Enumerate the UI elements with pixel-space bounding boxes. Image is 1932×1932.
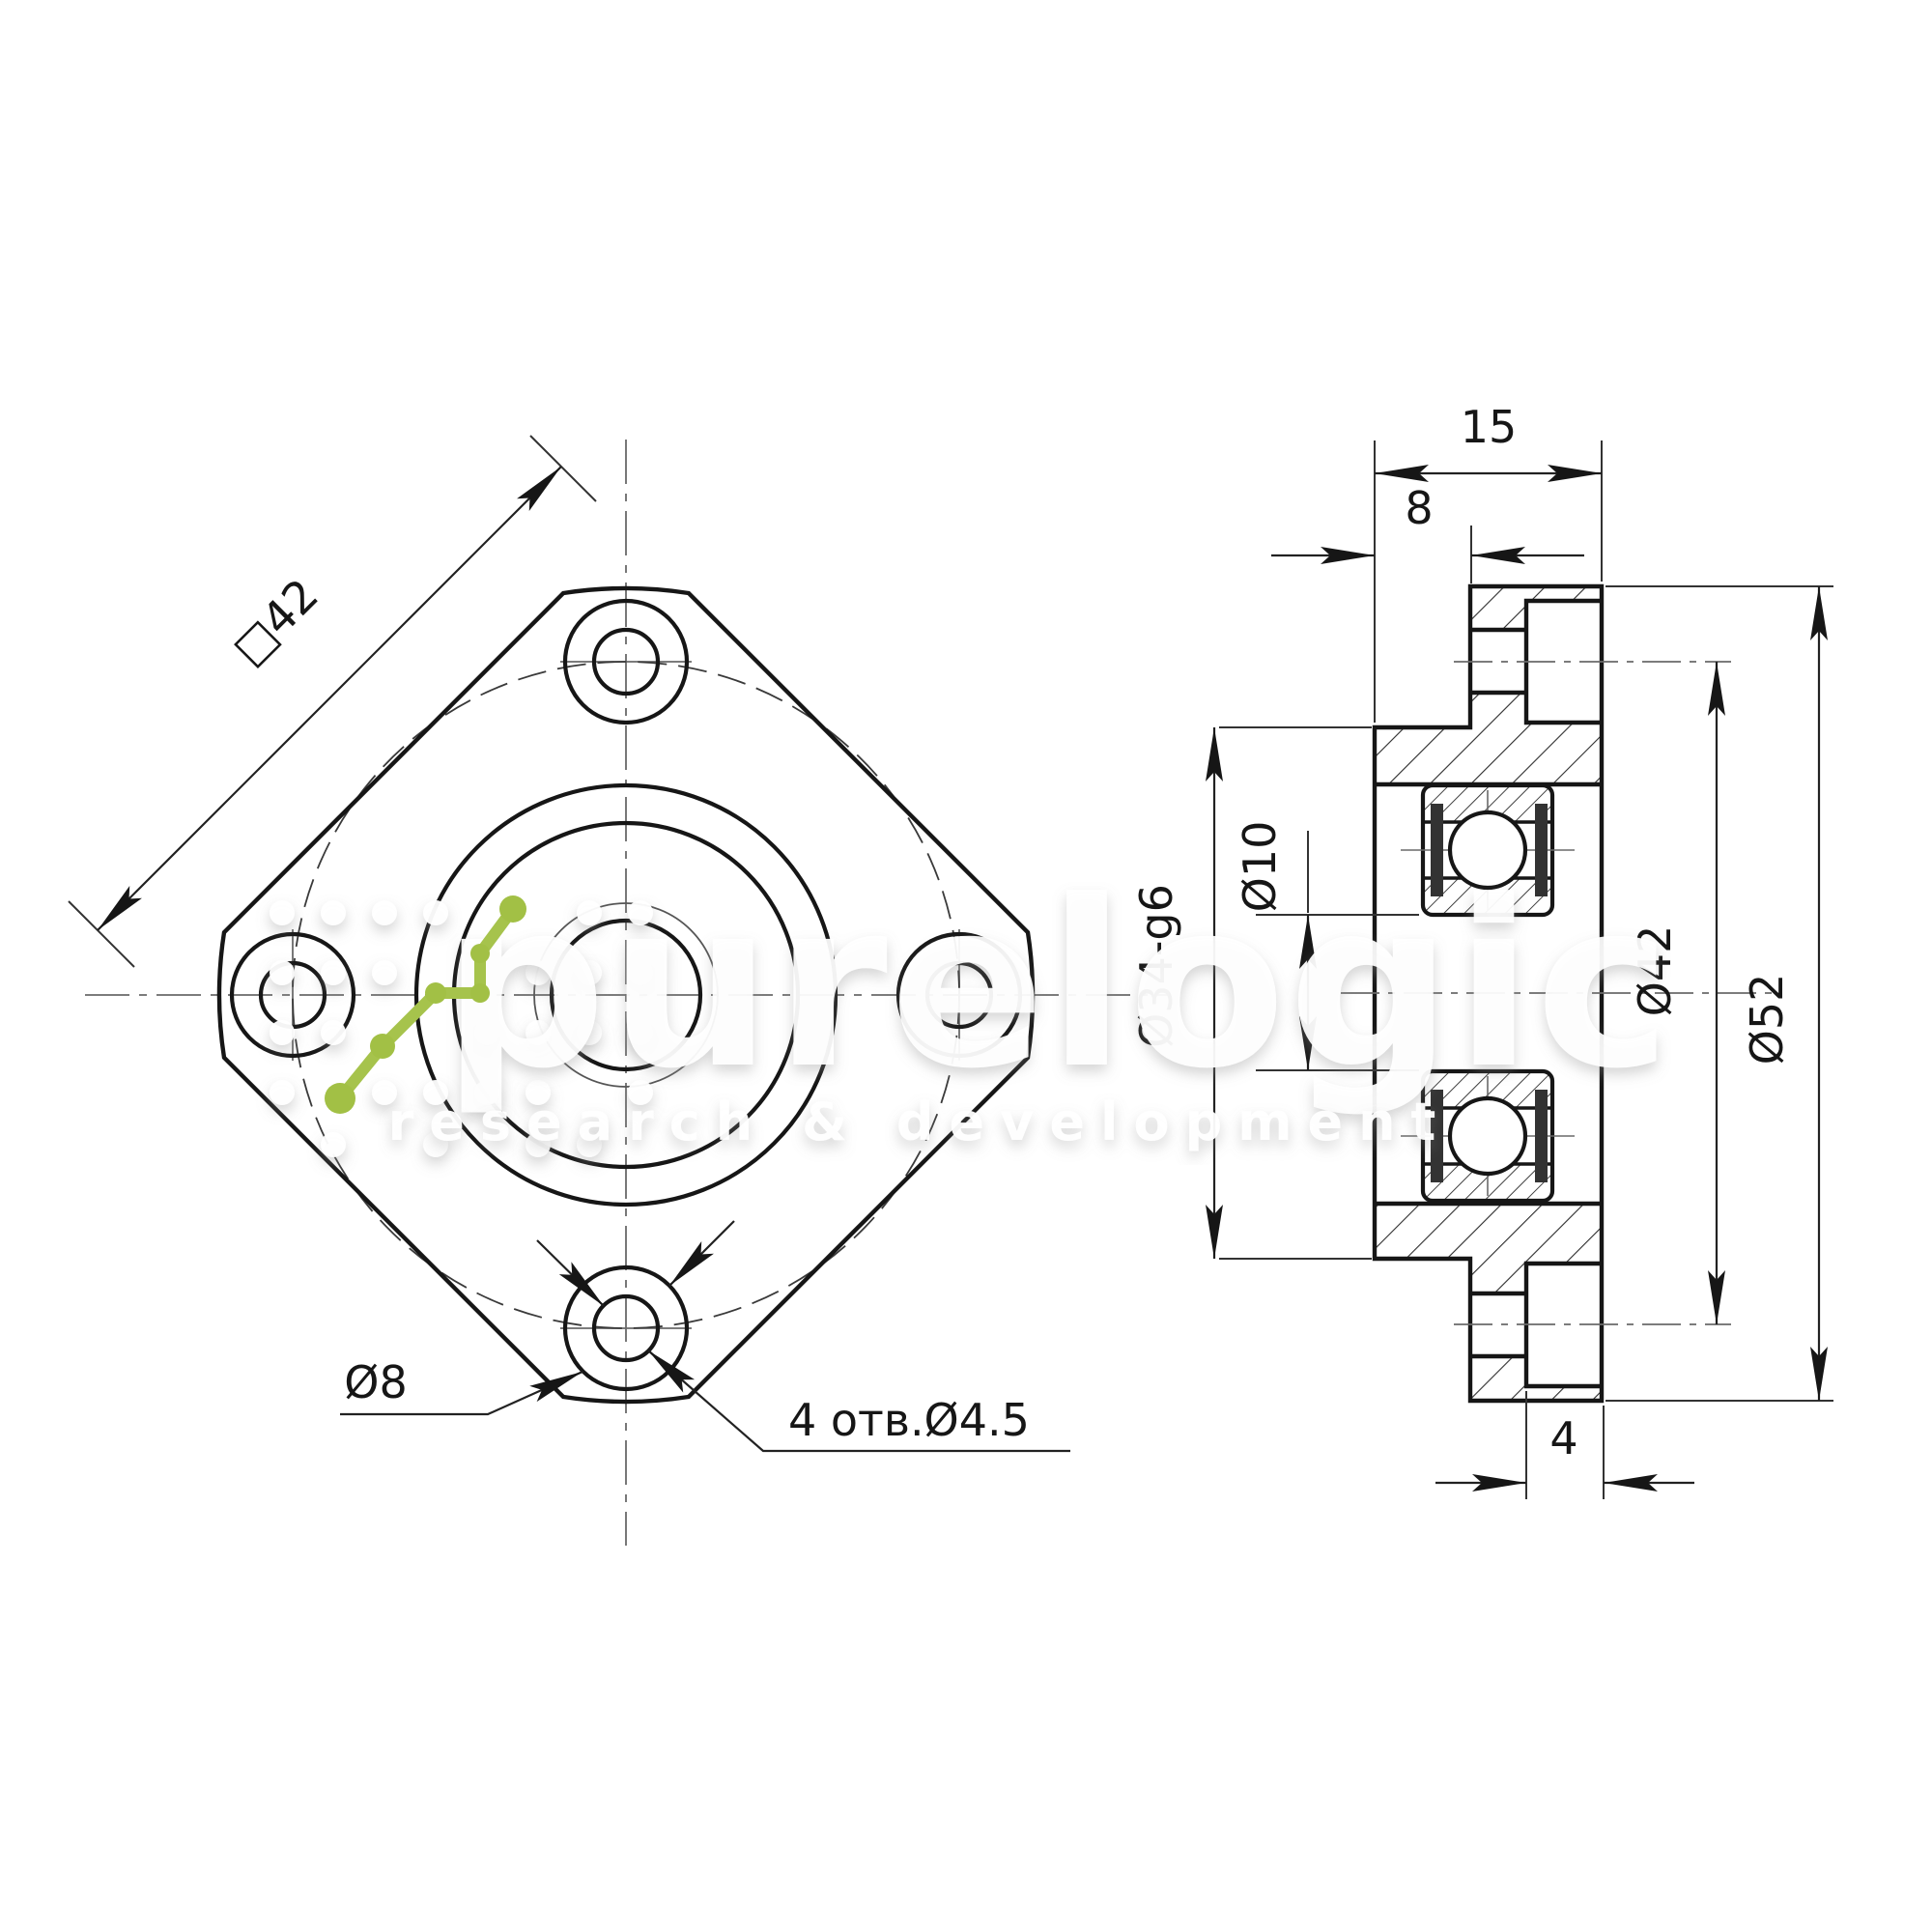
extension-line	[69, 901, 134, 967]
dim-label-d52: Ø52	[1741, 974, 1793, 1065]
dim-label-15: 15	[1461, 401, 1518, 453]
dim-label-8: 8	[1405, 482, 1433, 534]
dim-label-square-42: □42	[222, 569, 328, 675]
leader-holes-d45: 4 отв.Ø4.5	[537, 1240, 1070, 1451]
arrow-to-hole	[537, 1240, 604, 1306]
technical-drawing-canvas: □42 Ø8 4 отв.Ø4.5	[0, 0, 1932, 1932]
leader-label-4-holes: 4 отв.Ø4.5	[788, 1394, 1030, 1446]
arrow-to-counterbore	[669, 1221, 734, 1286]
leader-counterbore-d8: Ø8	[340, 1221, 734, 1414]
leader-label-d8: Ø8	[344, 1356, 407, 1408]
drawing-page: □42 Ø8 4 отв.Ø4.5	[0, 0, 1932, 1932]
dim-label-4: 4	[1549, 1412, 1577, 1464]
extension-line	[530, 436, 596, 501]
watermark-brand-text: purelogic	[442, 852, 1674, 1120]
watermark: purelogic research & development	[270, 852, 1673, 1157]
watermark-tagline-text: research & development	[388, 1092, 1452, 1152]
